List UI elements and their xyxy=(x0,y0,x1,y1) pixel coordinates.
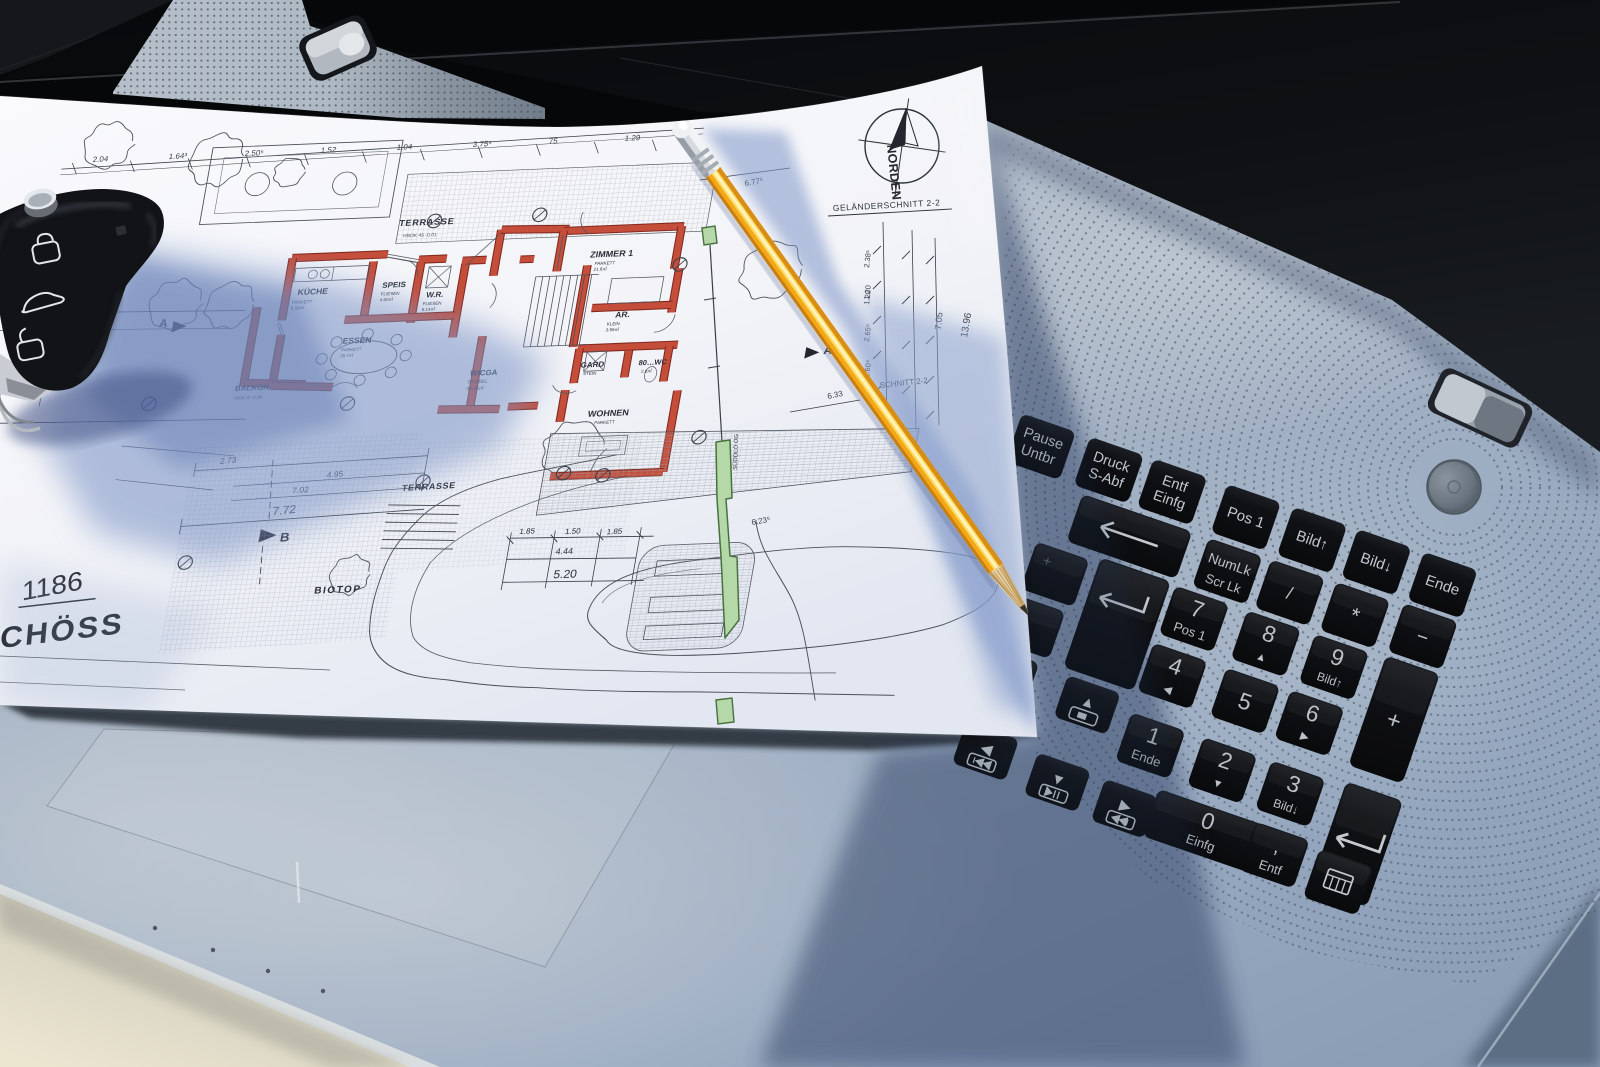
svg-text:WOHNEN: WOHNEN xyxy=(587,407,630,418)
svg-text:21.6㎡: 21.6㎡ xyxy=(593,265,608,271)
svg-text:1.85: 1.85 xyxy=(519,527,537,536)
svg-text:2.6㎡: 2.6㎡ xyxy=(641,367,653,373)
svg-text:3.75⁵: 3.75⁵ xyxy=(472,139,492,149)
svg-text:ZIMMER 1: ZIMMER 1 xyxy=(589,248,634,259)
svg-text:GARD: GARD xyxy=(580,360,605,370)
svg-text:3.56㎡: 3.56㎡ xyxy=(605,326,620,332)
svg-text:SÜDDLÖ OG: SÜDDLÖ OG xyxy=(732,434,740,471)
svg-text:W.R.: W.R. xyxy=(426,290,445,299)
svg-text:1.29: 1.29 xyxy=(624,133,642,143)
svg-text:5.20: 5.20 xyxy=(552,567,578,582)
svg-text:FLIESEN: FLIESEN xyxy=(380,291,400,297)
svg-text:1.04: 1.04 xyxy=(396,142,414,152)
svg-text:1.85: 1.85 xyxy=(606,527,624,536)
svg-text:1.50: 1.50 xyxy=(564,527,582,536)
svg-text:2.04: 2.04 xyxy=(92,154,110,164)
svg-text:STEIN: STEIN xyxy=(583,371,597,376)
svg-text:KLEIN: KLEIN xyxy=(606,321,620,326)
svg-text:AR.: AR. xyxy=(615,309,631,319)
svg-text:PARKETT: PARKETT xyxy=(594,420,616,426)
svg-text:1.64³: 1.64³ xyxy=(168,151,188,161)
svg-text:4.44: 4.44 xyxy=(555,546,574,556)
svg-text:BIOTOP: BIOTOP xyxy=(313,584,362,597)
svg-text:FLIESEN: FLIESEN xyxy=(422,301,442,307)
svg-text:PARKETT: PARKETT xyxy=(594,260,616,266)
svg-text:80…WC: 80…WC xyxy=(638,357,668,367)
svg-text:SPEIS: SPEIS xyxy=(382,280,407,290)
